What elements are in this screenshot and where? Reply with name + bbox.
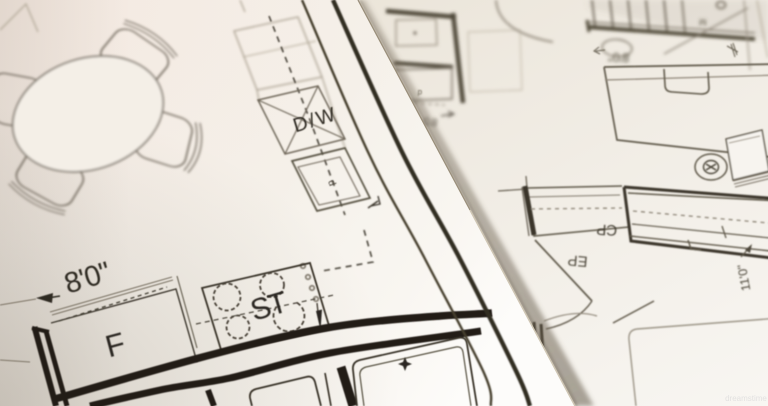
svg-text:dreamstime: dreamstime bbox=[725, 394, 767, 403]
